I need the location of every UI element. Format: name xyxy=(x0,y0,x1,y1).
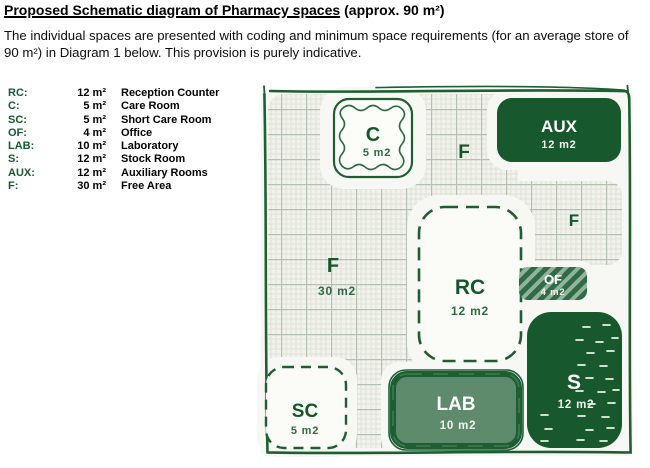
legend-row-rc: RC: 12 m² Reception Counter xyxy=(8,87,219,100)
legend-code: C: xyxy=(8,100,56,113)
legend-code: LAB: xyxy=(8,140,56,153)
legend-table: RC: 12 m² Reception Counter C: 5 m² Care… xyxy=(8,87,219,193)
legend-area: 12 m² xyxy=(56,153,106,166)
legend-row-of: OF: 4 m² Office xyxy=(8,127,219,140)
room-rc-label: RC xyxy=(455,276,485,299)
floorplan-svg: C 5 m2 F AUX 12 m2 F F 30 m2 RC 12 m2 OF… xyxy=(256,84,646,466)
room-c-area: 5 m2 xyxy=(363,147,391,159)
intro-paragraph: The individual spaces are presented with… xyxy=(4,28,638,61)
legend-name: Auxiliary Rooms xyxy=(106,167,219,180)
legend-row-aux: AUX: 12 m² Auxiliary Rooms xyxy=(8,167,219,180)
free-area-main-area: 30 m2 xyxy=(318,284,356,298)
legend-area: 4 m² xyxy=(56,127,106,140)
legend-code: F: xyxy=(8,180,56,193)
legend-code: SC: xyxy=(8,114,56,127)
legend-name: Reception Counter xyxy=(106,87,219,100)
free-area-main-label: F xyxy=(327,255,339,277)
title-suffix-text: (approx. 90 m²) xyxy=(344,2,444,18)
legend-area: 10 m² xyxy=(56,140,106,153)
title-underlined-text: Proposed Schematic diagram of Pharmacy s… xyxy=(4,2,340,18)
legend-row-c: C: 5 m² Care Room xyxy=(8,100,219,113)
legend-area: 5 m² xyxy=(56,114,106,127)
room-rc-area: 12 m2 xyxy=(451,304,489,318)
legend-row-lab: LAB: 10 m² Laboratory xyxy=(8,140,219,153)
room-lab-area: 10 m2 xyxy=(440,420,477,432)
legend-name: Laboratory xyxy=(106,140,219,153)
legend-name: Office xyxy=(106,127,219,140)
legend-code: S: xyxy=(8,153,56,166)
legend-area: 12 m² xyxy=(56,167,106,180)
legend-name: Short Care Room xyxy=(106,114,219,127)
legend-row-s: S: 12 m² Stock Room xyxy=(8,153,219,166)
room-sc-area: 5 m2 xyxy=(291,425,319,437)
page-title: Proposed Schematic diagram of Pharmacy s… xyxy=(4,2,445,18)
legend-area: 12 m² xyxy=(56,87,106,100)
pharmacy-floorplan-diagram: C 5 m2 F AUX 12 m2 F F 30 m2 RC 12 m2 OF… xyxy=(256,84,646,466)
legend-row-sc: SC: 5 m² Short Care Room xyxy=(8,114,219,127)
legend-name: Free Area xyxy=(106,180,219,193)
legend-row-f: F: 30 m² Free Area xyxy=(8,180,219,193)
room-s-label: S xyxy=(567,371,581,394)
room-aux-label: AUX xyxy=(541,117,578,136)
legend-code: AUX: xyxy=(8,167,56,180)
legend-name: Care Room xyxy=(106,100,219,113)
legend-code: OF: xyxy=(8,127,56,140)
free-area-right-label: F xyxy=(569,211,579,230)
room-of-label: OF xyxy=(544,272,562,287)
room-sc-label: SC xyxy=(292,401,319,422)
room-c-label: C xyxy=(366,124,380,146)
legend-area: 30 m² xyxy=(56,180,106,193)
room-of-area: 4 m2 xyxy=(541,287,566,298)
room-aux-area: 12 m2 xyxy=(541,139,576,151)
room-lab-label: LAB xyxy=(436,394,475,415)
room-s-area: 12 m2 xyxy=(558,399,595,411)
legend-area: 5 m² xyxy=(56,100,106,113)
legend-code: RC: xyxy=(8,87,56,100)
legend-name: Stock Room xyxy=(106,153,219,166)
free-area-top-label: F xyxy=(458,142,470,163)
